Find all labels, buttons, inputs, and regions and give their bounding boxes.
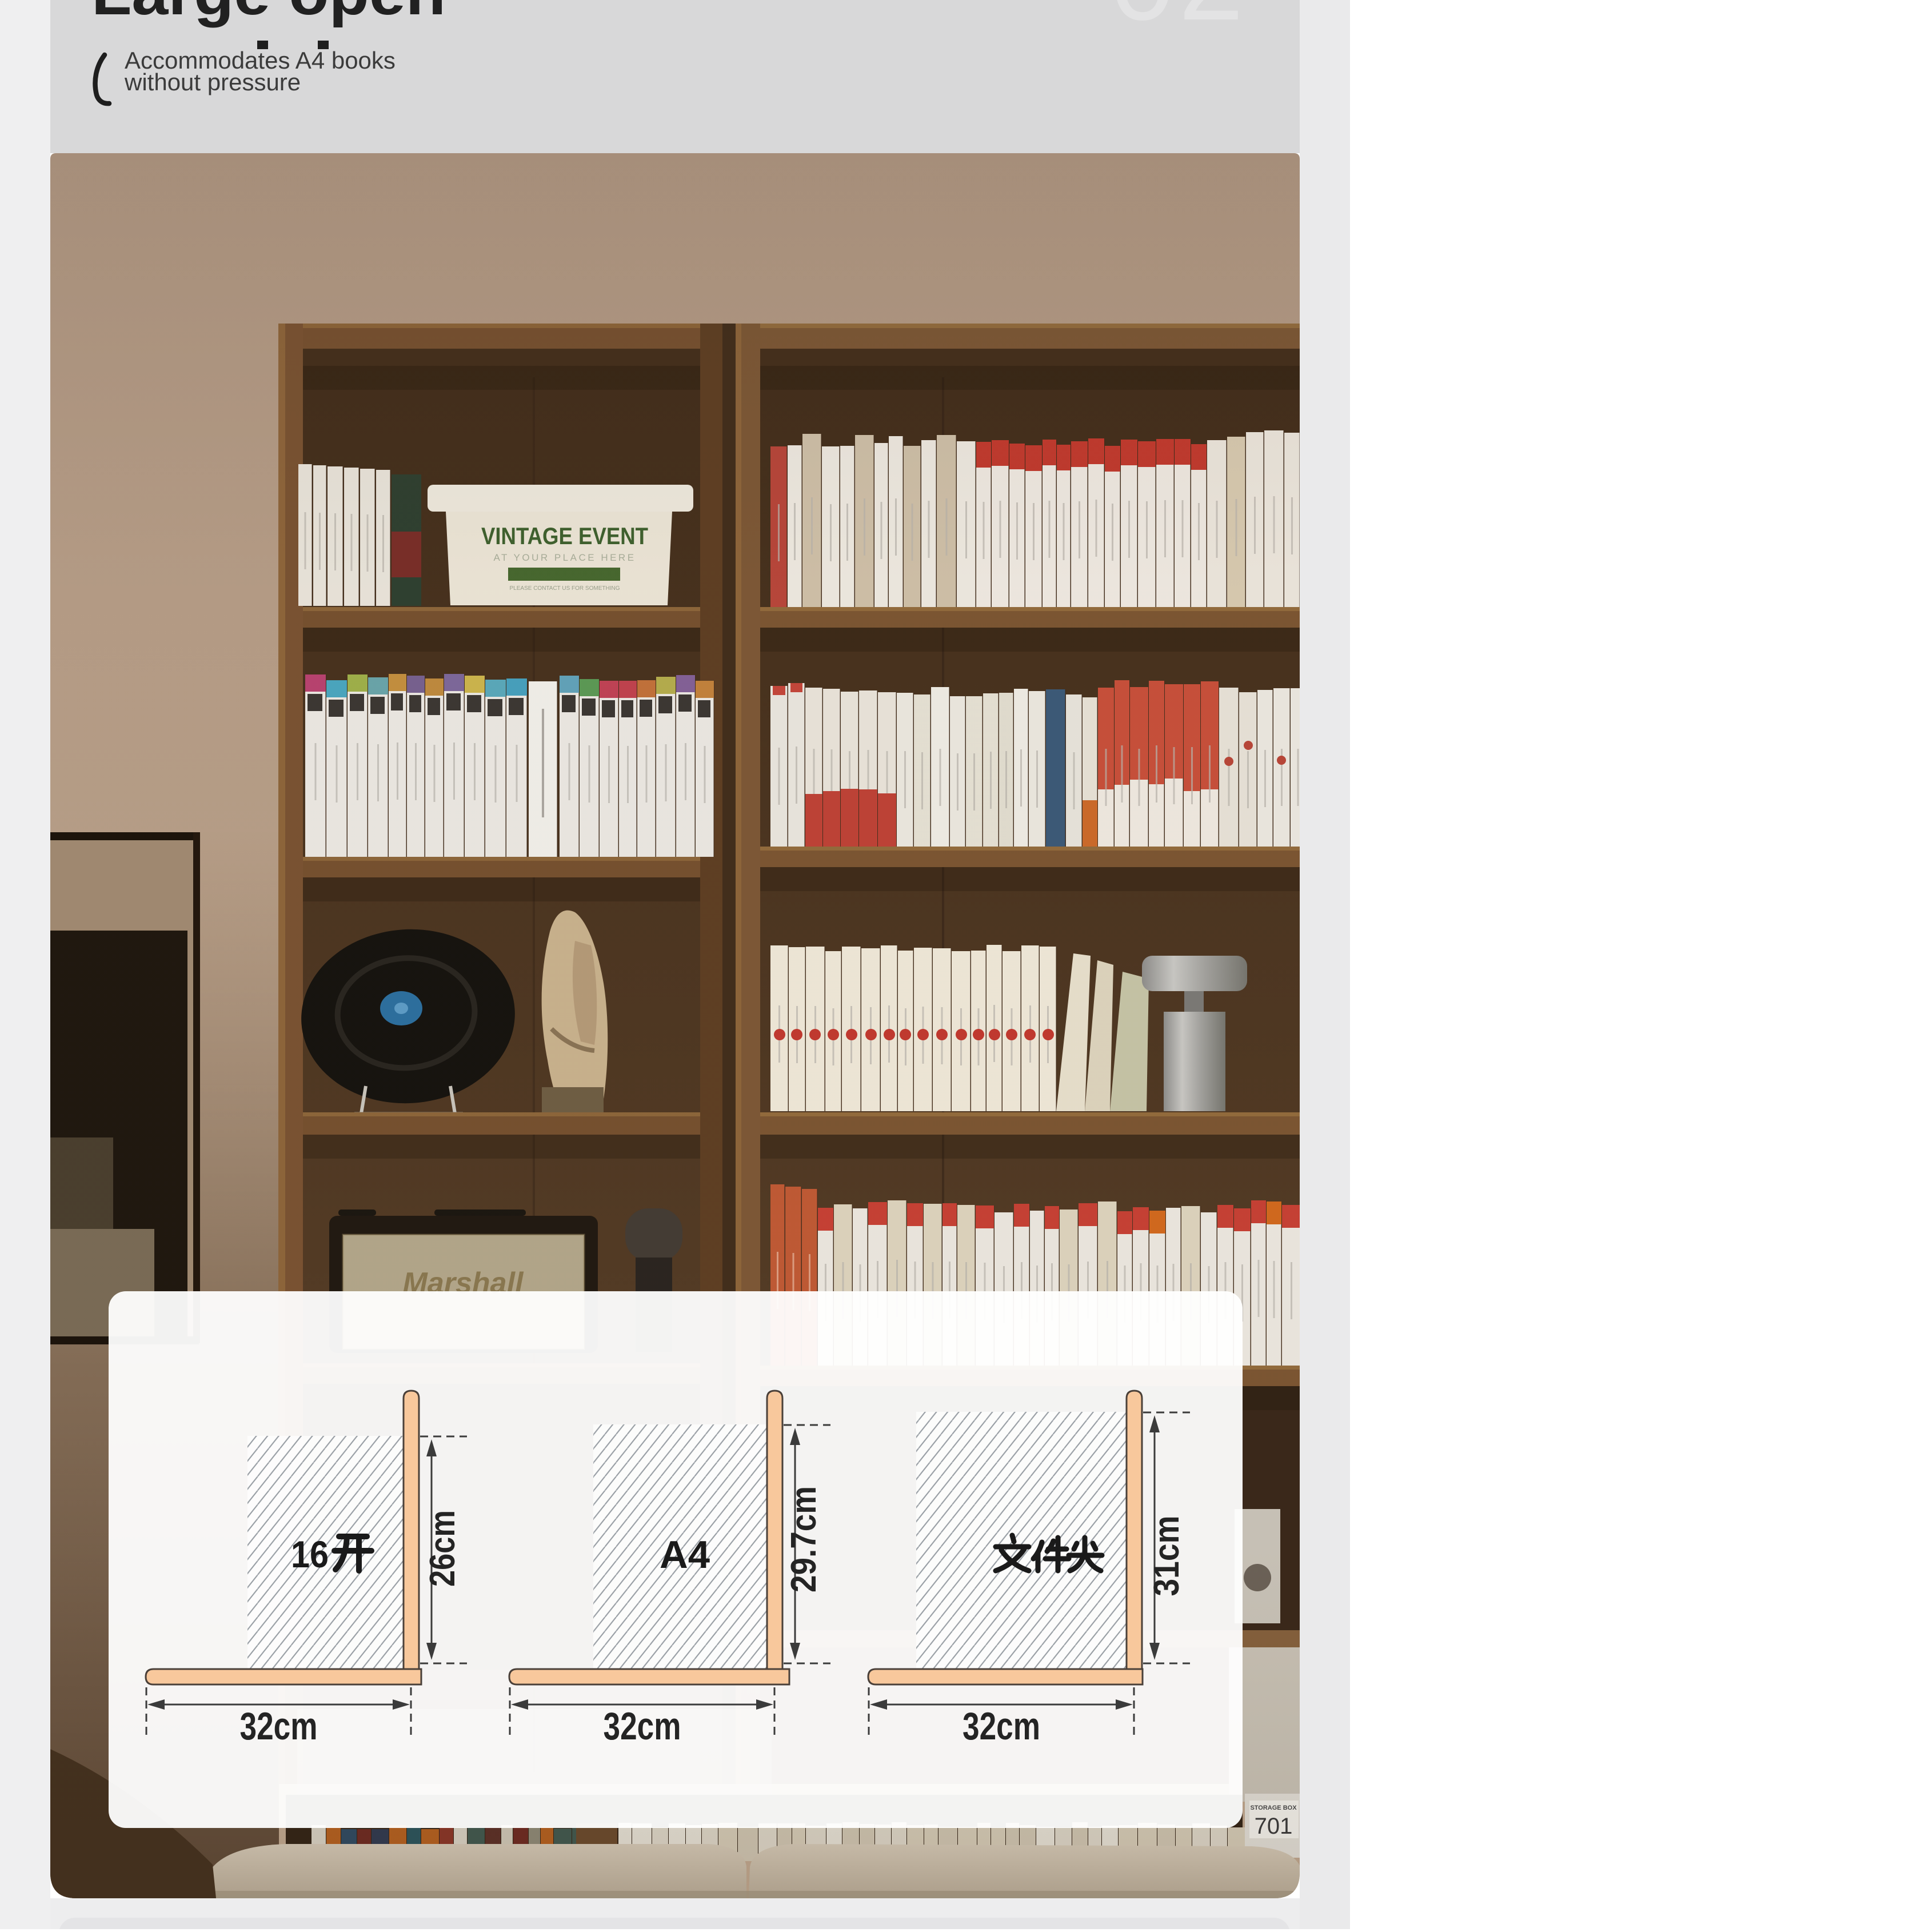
svg-text:32cm: 32cm: [962, 1705, 1040, 1748]
svg-text:31cm: 31cm: [1147, 1516, 1187, 1596]
svg-text:26cm: 26cm: [423, 1510, 462, 1587]
svg-text:32cm: 32cm: [240, 1705, 318, 1748]
svg-text:02: 02: [1110, 0, 1247, 45]
svg-text:without pressure: without pressure: [124, 69, 301, 95]
svg-text:29.7cm: 29.7cm: [784, 1486, 824, 1592]
svg-text:Large open: Large open: [91, 0, 446, 28]
svg-text:A4: A4: [660, 1533, 710, 1576]
svg-text:32cm: 32cm: [604, 1705, 681, 1748]
svg-text:16: 16: [291, 1533, 329, 1575]
